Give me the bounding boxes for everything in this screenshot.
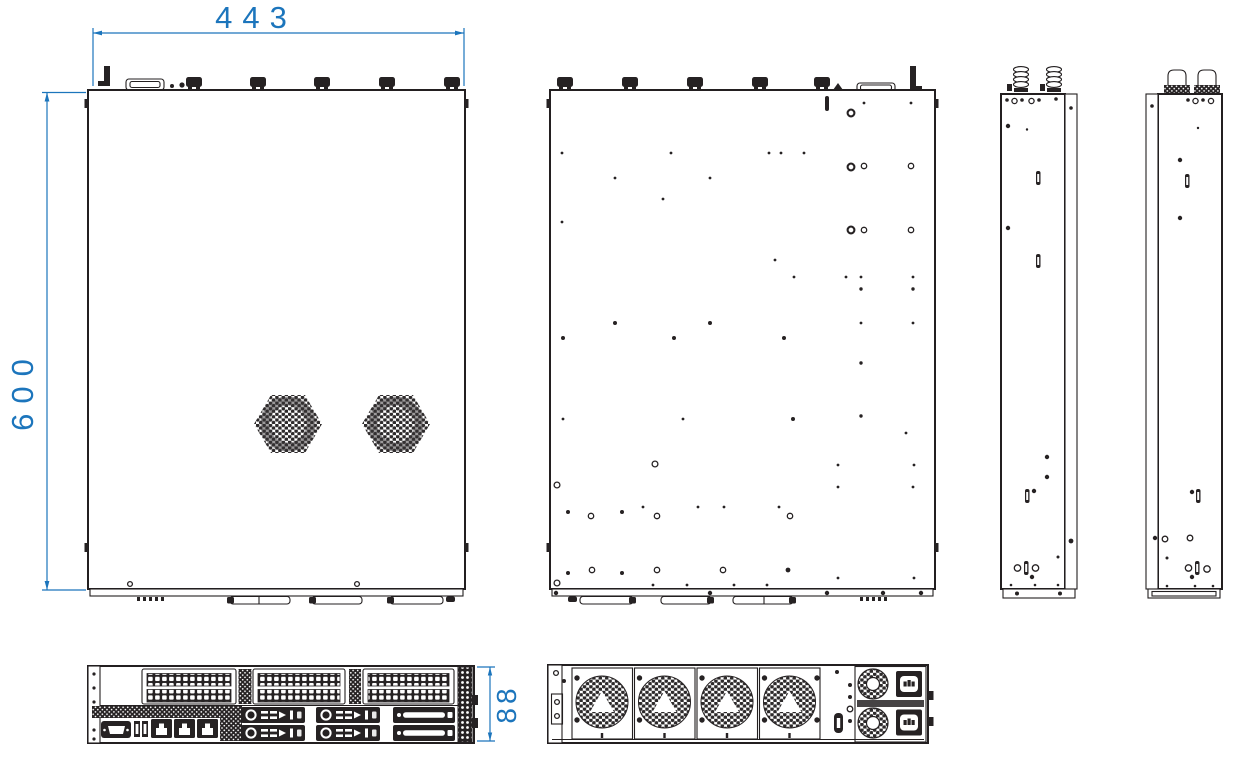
drive-tray-blank: [393, 725, 455, 741]
side-view-left-body: [1001, 94, 1065, 589]
top-view-front-lip: [90, 589, 463, 596]
drive-tray: [241, 725, 305, 741]
front-expansion-grilles: [142, 669, 454, 704]
side-view-left-base: [1003, 589, 1075, 598]
side-view-right-flange: [1146, 94, 1158, 589]
bottom-view: [547, 66, 939, 604]
rear-psu-block: [855, 667, 926, 743]
top-view: [85, 66, 469, 604]
rear-fan: [639, 676, 691, 728]
bottom-view-front-latches: [568, 597, 887, 605]
rear-view: [548, 665, 934, 743]
drive-tray: [316, 725, 380, 741]
side-view-left-antenna-springs: [1007, 67, 1062, 92]
dimension-width: 443: [93, 0, 464, 86]
front-left-ear: [88, 666, 100, 743]
side-view-right-base: [1148, 589, 1220, 598]
drive-tray: [316, 707, 380, 723]
dimension-depth-value: 600: [5, 349, 40, 431]
top-view-rear-fittings: [98, 66, 460, 90]
psu-fan: [858, 669, 888, 699]
dimension-depth: 600: [5, 93, 86, 591]
psu-power-inlet: [896, 710, 922, 736]
front-mesh-block: [220, 706, 242, 741]
front-view: [88, 666, 478, 743]
drawing-sheet: 443 600 88: [0, 0, 1242, 758]
top-view-chassis-outline: [88, 90, 465, 589]
bottom-view-chassis-outline: [550, 90, 935, 589]
dimension-width-value: 443: [215, 0, 297, 35]
rear-fan: [701, 676, 753, 728]
engineering-drawing-canvas: 443 600 88: [0, 0, 1242, 758]
side-view-right-handles: [1164, 70, 1220, 93]
ethernet-ports: [151, 719, 218, 738]
side-view-left: [1001, 67, 1077, 598]
rear-fan: [764, 676, 816, 728]
side-view-right-body: [1158, 94, 1222, 589]
dimension-height: 88: [477, 667, 522, 741]
psu-power-inlet: [896, 671, 922, 697]
dimension-height-value: 88: [491, 684, 522, 723]
vga-port: [101, 721, 131, 738]
psu-fan: [858, 708, 888, 738]
drive-tray-blank: [393, 707, 455, 723]
rear-fan: [576, 676, 628, 728]
bottom-view-front-lip: [552, 589, 933, 596]
drive-tray: [241, 707, 305, 723]
rear-usb-connector: [834, 713, 843, 733]
front-mesh-band: [92, 706, 222, 718]
side-view-right: [1146, 70, 1222, 598]
bottom-view-rear-fittings: [557, 66, 922, 92]
side-view-left-flange: [1065, 94, 1077, 589]
top-view-front-latches: [137, 597, 455, 605]
